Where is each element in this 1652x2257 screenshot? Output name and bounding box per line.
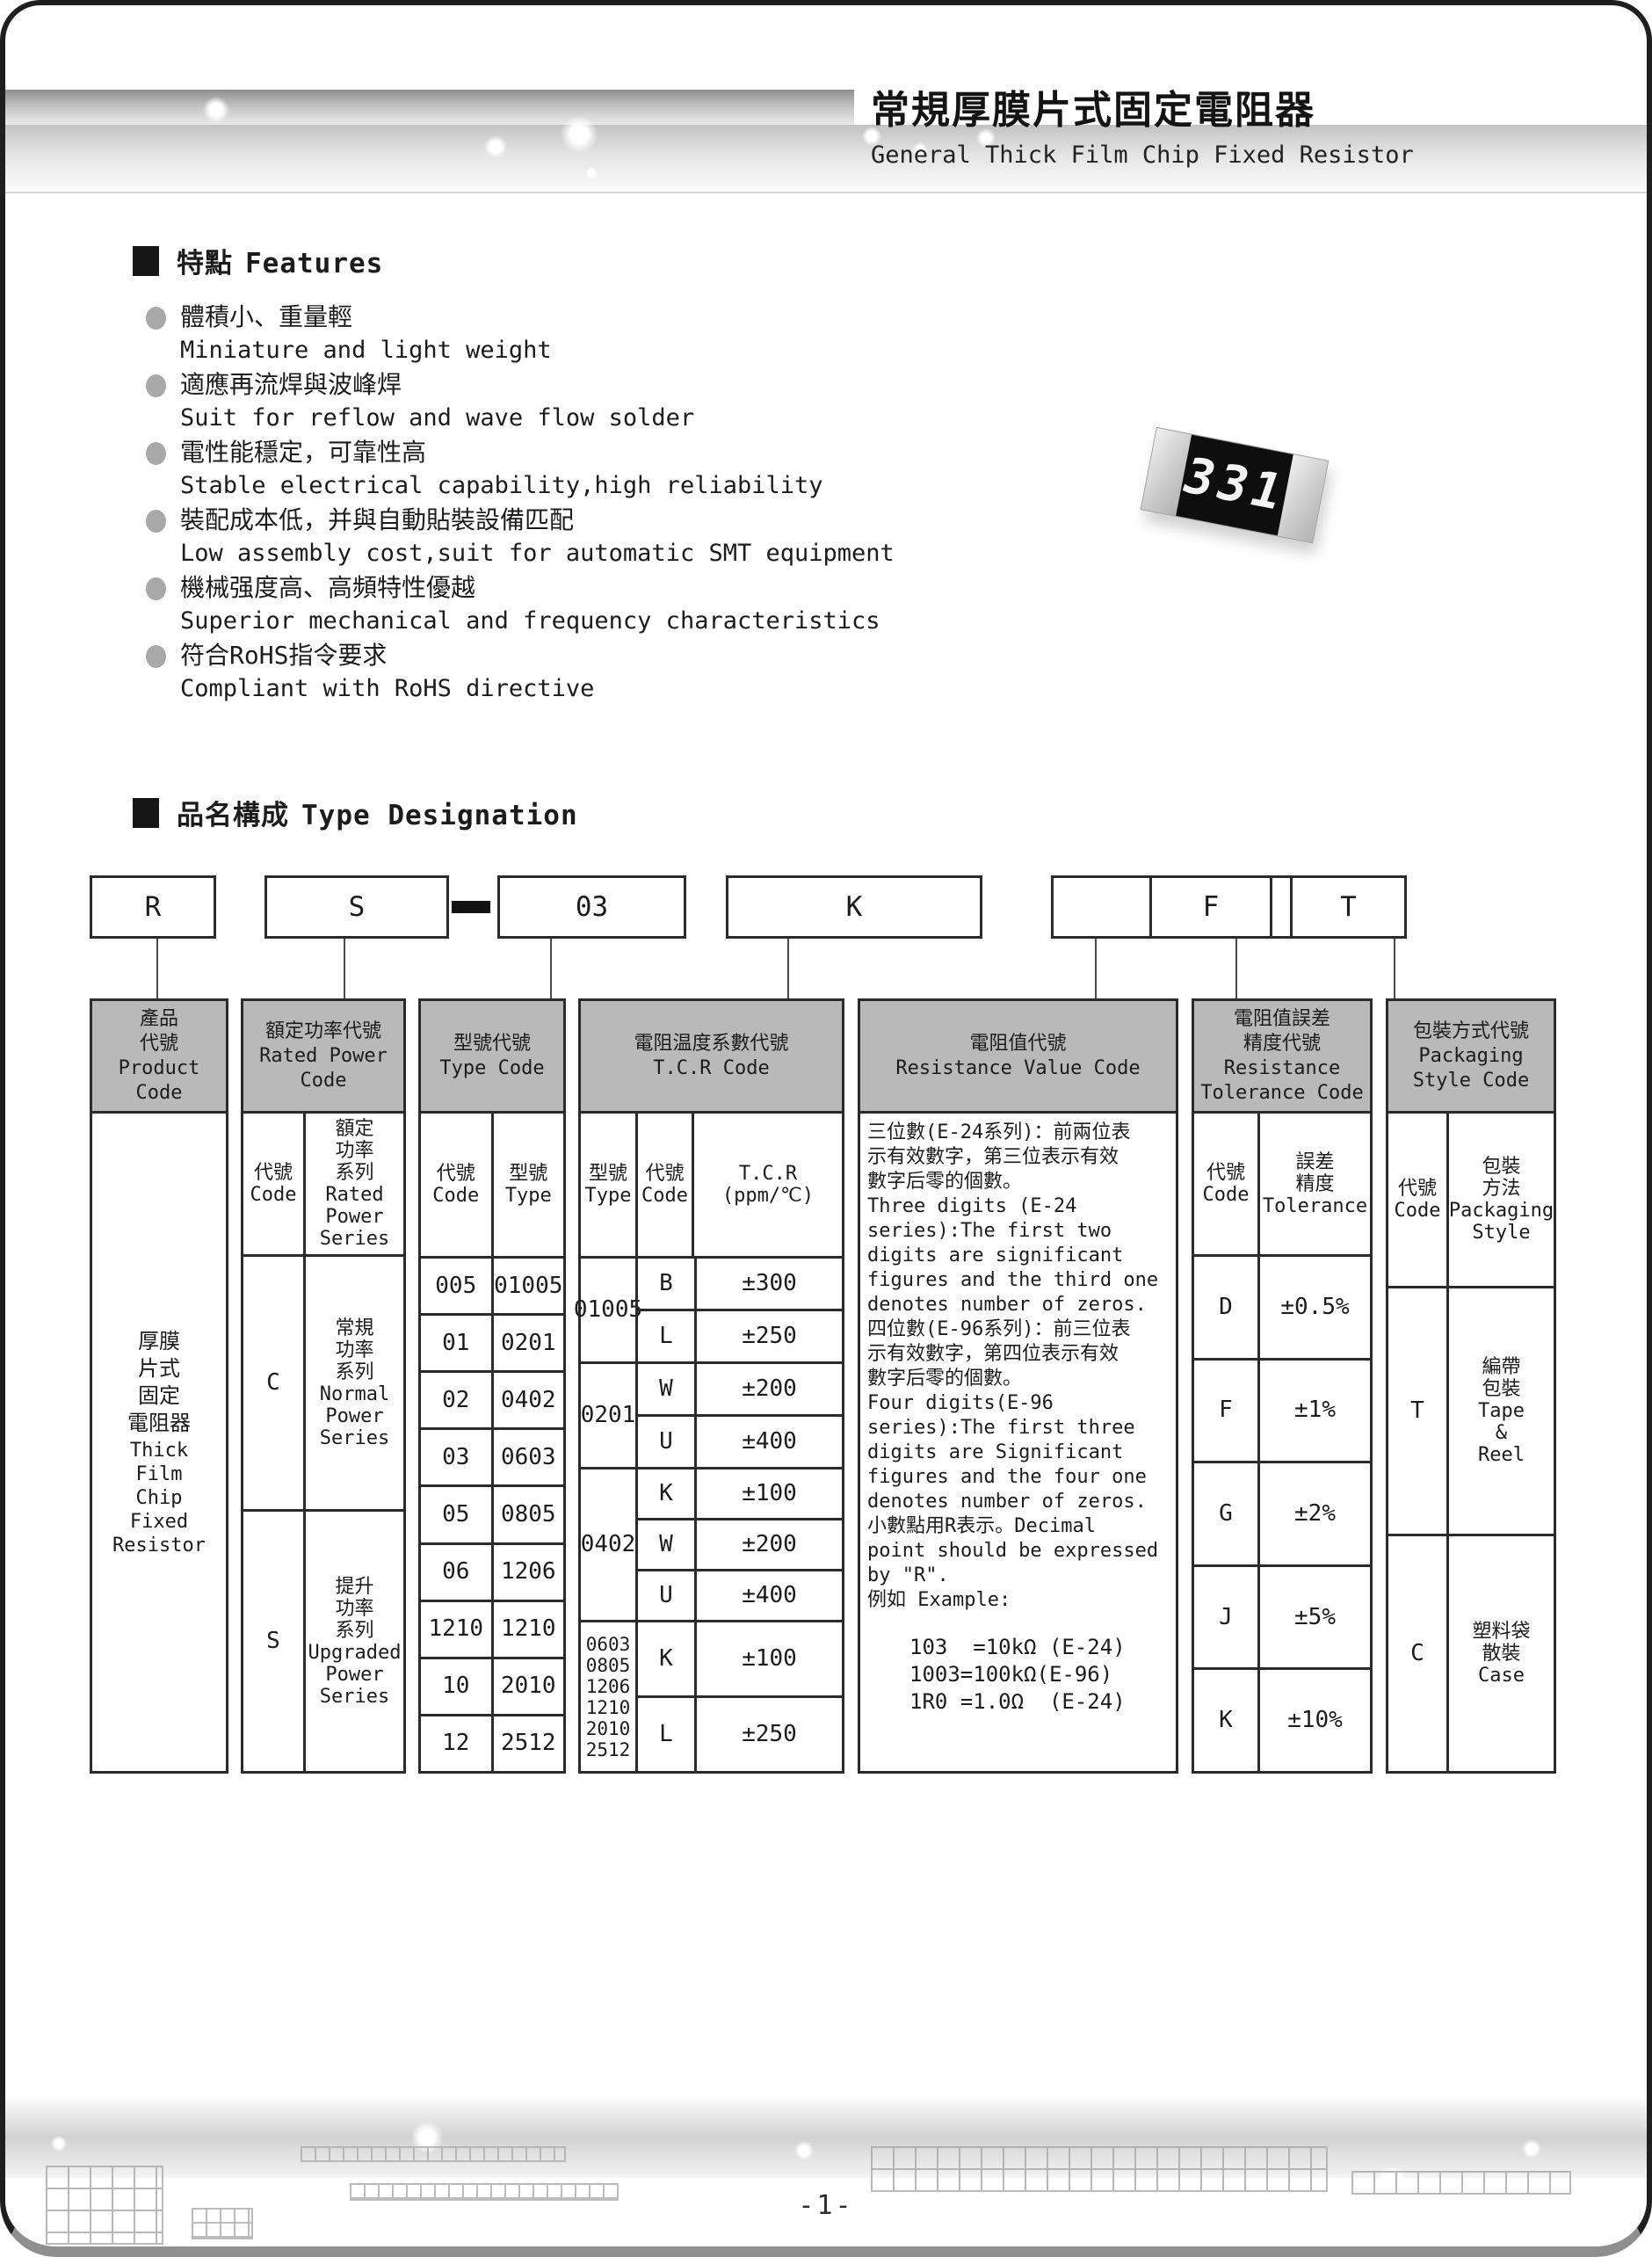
- tcr-code: K: [638, 1622, 694, 1695]
- table-column-packaging: 包裝方式代號 Packaging Style Code 代號 Code 包裝 方…: [1386, 998, 1556, 1774]
- subheader-style: 包裝 方法 Packaging Style: [1446, 1114, 1554, 1286]
- sparkle-icon: [1040, 2231, 1067, 2257]
- type-code: 005: [421, 1259, 491, 1313]
- subheader-code: 代號 Code: [635, 1114, 692, 1256]
- datasheet-page: 常規厚膜片式固定電阻器 General Thick Film Chip Fixe…: [0, 0, 1652, 2257]
- tolerance-value: ±2%: [1257, 1463, 1370, 1564]
- page-title-en: General Thick Film Chip Fixed Resistor: [871, 141, 1414, 171]
- feature-item: 機械强度高、高頻特性優越 Superior mechanical and fre…: [146, 571, 1130, 638]
- feature-item: 符合RoHS指令要求 Compliant with RoHS directive: [146, 639, 1130, 706]
- type-designation-heading-zh: 品名構成: [177, 800, 289, 831]
- bullet-icon: [146, 307, 166, 330]
- code-box-packaging: T: [1290, 875, 1407, 939]
- connector-line: [1394, 939, 1395, 998]
- code-box-tcr: K: [726, 875, 982, 939]
- column-header: 電阻温度系數代號 T.C.R Code: [581, 1001, 842, 1114]
- footer-gradient-band: [5, 2097, 1647, 2178]
- tolerance-value: ±0.5%: [1257, 1257, 1370, 1358]
- tolerance-code: J: [1194, 1567, 1257, 1668]
- tcr-type: 0201: [581, 1364, 635, 1467]
- subheader-code: 代號 Code: [1388, 1114, 1446, 1286]
- feature-item: 體積小、重量輕 Miniature and light weight: [146, 301, 1130, 367]
- product-name-en: Thick Film Chip Fixed Resistor: [112, 1439, 206, 1557]
- sparkle-icon: [585, 167, 598, 179]
- tcr-value: ±300: [694, 1259, 842, 1309]
- connector-line: [156, 939, 158, 998]
- packaging-style: 編帶 包裝 Tape & Reel: [1446, 1288, 1554, 1534]
- feature-text-en: Suit for reflow and wave flow solder: [180, 402, 694, 435]
- product-code-cell: 厚膜 片式 固定 電阻器 Thick Film Chip Fixed Resis…: [92, 1114, 226, 1771]
- resistor-body: 331: [1176, 435, 1293, 536]
- section-square-icon: [133, 798, 159, 828]
- feature-text-en: Compliant with RoHS directive: [180, 672, 594, 706]
- table-column-rated-power: 額定功率代號 Rated Power Code 代號 Code 額定 功率 系列…: [241, 998, 406, 1774]
- feature-item: 裝配成本低，并與自動貼裝設備匹配 Low assembly cost,suit …: [146, 504, 1130, 570]
- tcr-type: 0402: [581, 1470, 635, 1620]
- sparkle-icon: [1522, 2139, 1541, 2159]
- type-code: 03: [421, 1430, 491, 1484]
- type-size: 2010: [491, 1659, 564, 1714]
- tcr-type: 01005: [581, 1259, 635, 1361]
- power-series: 常規 功率 系列 Normal Power Series: [303, 1257, 403, 1509]
- tcr-value: ±250: [694, 1698, 842, 1771]
- connector-line: [787, 939, 789, 998]
- page-number: -1-: [5, 2190, 1647, 2221]
- tcr-value: ±400: [694, 1417, 842, 1467]
- tcr-code: W: [638, 1520, 694, 1569]
- column-header: 電阻值誤差 精度代號 Resistance Tolerance Code: [1194, 1001, 1370, 1114]
- power-code: S: [243, 1512, 303, 1771]
- connector-line: [550, 939, 552, 998]
- power-code: C: [243, 1257, 303, 1509]
- feature-item: 電性能穩定，可靠性高 Stable electrical capability,…: [146, 436, 1130, 503]
- feature-text-zh: 符合RoHS指令要求: [180, 639, 594, 672]
- resistance-value-examples: 103 =10kΩ (E-24) 1003=100kΩ(E-96) 1R0 =1…: [909, 1634, 1169, 1716]
- feature-text-en: Low assembly cost,suit for automatic SMT…: [180, 537, 895, 570]
- packaging-code: T: [1388, 1288, 1446, 1534]
- features-heading-en: Features: [245, 248, 383, 279]
- tcr-type: 0603 0805 1206 1210 2010 2512: [581, 1622, 635, 1771]
- packaging-code: C: [1388, 1536, 1446, 1771]
- type-size: 0603: [491, 1430, 564, 1484]
- resistance-value-description: 三位數(E-24系列)：前兩位表 示有效數字，第三位表示有效 數字后零的個數。 …: [867, 1121, 1169, 1613]
- resistor-marking: 331: [1177, 452, 1293, 519]
- subheader-tolerance: 誤差 精度 Tolerance: [1257, 1114, 1370, 1254]
- type-size: 1210: [491, 1602, 564, 1657]
- tcr-code: B: [638, 1259, 694, 1309]
- type-designation-heading: 品名構成Type Designation: [133, 793, 578, 832]
- type-code: 12: [421, 1716, 491, 1771]
- table-column-tcr-code: 電阻温度系數代號 T.C.R Code 型號 Type 代號 Code T.C.…: [578, 998, 844, 1774]
- code-box-product: R: [90, 875, 216, 939]
- column-header: 額定功率代號 Rated Power Code: [243, 1001, 403, 1114]
- type-size: 0201: [491, 1316, 564, 1370]
- subheader-series: 額定 功率 系列 Rated Power Series: [303, 1114, 403, 1254]
- chip-resistor: 331: [1141, 427, 1330, 543]
- tolerance-value: ±5%: [1257, 1567, 1370, 1668]
- column-header: 電阻值代號 Resistance Value Code: [860, 1001, 1176, 1114]
- tcr-code: U: [638, 1571, 694, 1620]
- code-box-tolerance: F: [1149, 875, 1272, 939]
- features-heading-zh: 特點: [177, 248, 233, 279]
- subheader-code: 代號 Code: [243, 1114, 303, 1254]
- bullet-icon: [146, 645, 166, 668]
- tcr-code: U: [638, 1417, 694, 1467]
- table-column-resistance-value: 電阻值代號 Resistance Value Code 三位數(E-24系列)：…: [858, 998, 1178, 1774]
- type-size: 0805: [491, 1487, 564, 1542]
- code-box-power: S: [264, 875, 449, 939]
- type-code: 06: [421, 1545, 491, 1600]
- section-square-icon: [133, 246, 159, 276]
- page-title-zh: 常規厚膜片式固定電阻器: [871, 88, 1414, 134]
- connector-line: [1095, 939, 1097, 998]
- type-code: 1210: [421, 1602, 491, 1657]
- type-size: 1206: [491, 1545, 564, 1600]
- bullet-icon: [146, 442, 166, 465]
- tcr-value: ±250: [694, 1311, 842, 1361]
- tcr-code: L: [638, 1311, 694, 1361]
- bullet-icon: [146, 577, 166, 600]
- tolerance-code: F: [1194, 1361, 1257, 1462]
- table-column-product-code: 產品 代號 Product Code 厚膜 片式 固定 電阻器 Thick Fi…: [90, 998, 228, 1774]
- feature-text-zh: 適應再流焊與波峰焊: [180, 368, 694, 402]
- square-pattern-decoration: [871, 2146, 1328, 2192]
- header-gradient-bar: [5, 90, 854, 125]
- tcr-value: ±100: [694, 1622, 842, 1695]
- feature-text-en: Superior mechanical and frequency charac…: [180, 605, 880, 638]
- tolerance-value: ±1%: [1257, 1361, 1370, 1462]
- feature-text-zh: 裝配成本低，并與自動貼裝設備匹配: [180, 504, 895, 537]
- feature-text-zh: 機械强度高、高頻特性優越: [180, 571, 880, 605]
- sparkle-icon: [203, 97, 229, 123]
- connector-line: [1235, 939, 1237, 998]
- tcr-code: W: [638, 1364, 694, 1414]
- feature-text-zh: 電性能穩定，可靠性高: [180, 436, 823, 469]
- sparkle-icon: [561, 116, 598, 153]
- subheader-type: 型號 Type: [491, 1114, 564, 1256]
- type-size: 2512: [491, 1716, 564, 1771]
- subheader-type: 型號 Type: [581, 1114, 635, 1256]
- feature-text-zh: 體積小、重量輕: [180, 301, 552, 334]
- column-header: 產品 代號 Product Code: [92, 1001, 226, 1114]
- feature-text-en: Stable electrical capability,high reliab…: [180, 469, 823, 503]
- bullet-icon: [146, 374, 166, 397]
- type-code: 10: [421, 1659, 491, 1714]
- tolerance-code: G: [1194, 1463, 1257, 1564]
- tolerance-code: K: [1194, 1670, 1257, 1771]
- type-size: 01005: [491, 1259, 564, 1313]
- features-list: 體積小、重量輕 Miniature and light weight 適應再流焊…: [146, 301, 1130, 707]
- features-section-heading: 特點Features: [133, 241, 383, 280]
- subheader-code: 代號 Code: [1194, 1114, 1257, 1254]
- tcr-code: L: [638, 1698, 694, 1771]
- connector-line: [344, 939, 345, 998]
- product-name-zh: 厚膜 片式 固定 電阻器: [127, 1328, 191, 1437]
- tcr-value: ±200: [694, 1520, 842, 1569]
- feature-text-en: Miniature and light weight: [180, 334, 552, 367]
- subheader-code: 代號 Code: [421, 1114, 491, 1256]
- table-column-tolerance: 電阻值誤差 精度代號 Resistance Tolerance Code 代號 …: [1192, 998, 1373, 1774]
- table-column-type-code: 型號代號 Type Code 代號 Code 型號 Type 00501005 …: [418, 998, 566, 1774]
- tcr-value: ±200: [694, 1364, 842, 1414]
- type-code: 05: [421, 1487, 491, 1542]
- subheader-tcr: T.C.R (ppm/℃): [692, 1114, 842, 1256]
- column-header: 型號代號 Type Code: [421, 1001, 563, 1114]
- sparkle-icon: [484, 135, 507, 158]
- tcr-code: K: [638, 1470, 694, 1518]
- column-header: 包裝方式代號 Packaging Style Code: [1388, 1001, 1554, 1114]
- code-box-type: 03: [497, 875, 686, 939]
- bullet-icon: [146, 510, 166, 533]
- page-title: 常規厚膜片式固定電阻器 General Thick Film Chip Fixe…: [871, 88, 1414, 171]
- sparkle-icon: [51, 2136, 67, 2152]
- power-series: 提升 功率 系列 Upgraded Power Series: [303, 1512, 403, 1771]
- feature-item: 適應再流焊與波峰焊 Suit for reflow and wave flow …: [146, 368, 1130, 435]
- type-designation-heading-en: Type Designation: [301, 800, 578, 831]
- square-pattern-decoration: [301, 2146, 566, 2162]
- dash-separator: [452, 901, 490, 913]
- tcr-value: ±100: [694, 1470, 842, 1518]
- type-code: 01: [421, 1316, 491, 1370]
- resistor-photo: 331: [1144, 420, 1329, 561]
- packaging-style: 塑料袋 散裝 Case: [1446, 1536, 1554, 1771]
- type-code: 02: [421, 1373, 491, 1427]
- tcr-value: ±400: [694, 1571, 842, 1620]
- tolerance-value: ±10%: [1257, 1670, 1370, 1771]
- type-size: 0402: [491, 1373, 564, 1427]
- tolerance-code: D: [1194, 1257, 1257, 1358]
- sparkle-icon: [794, 2141, 814, 2160]
